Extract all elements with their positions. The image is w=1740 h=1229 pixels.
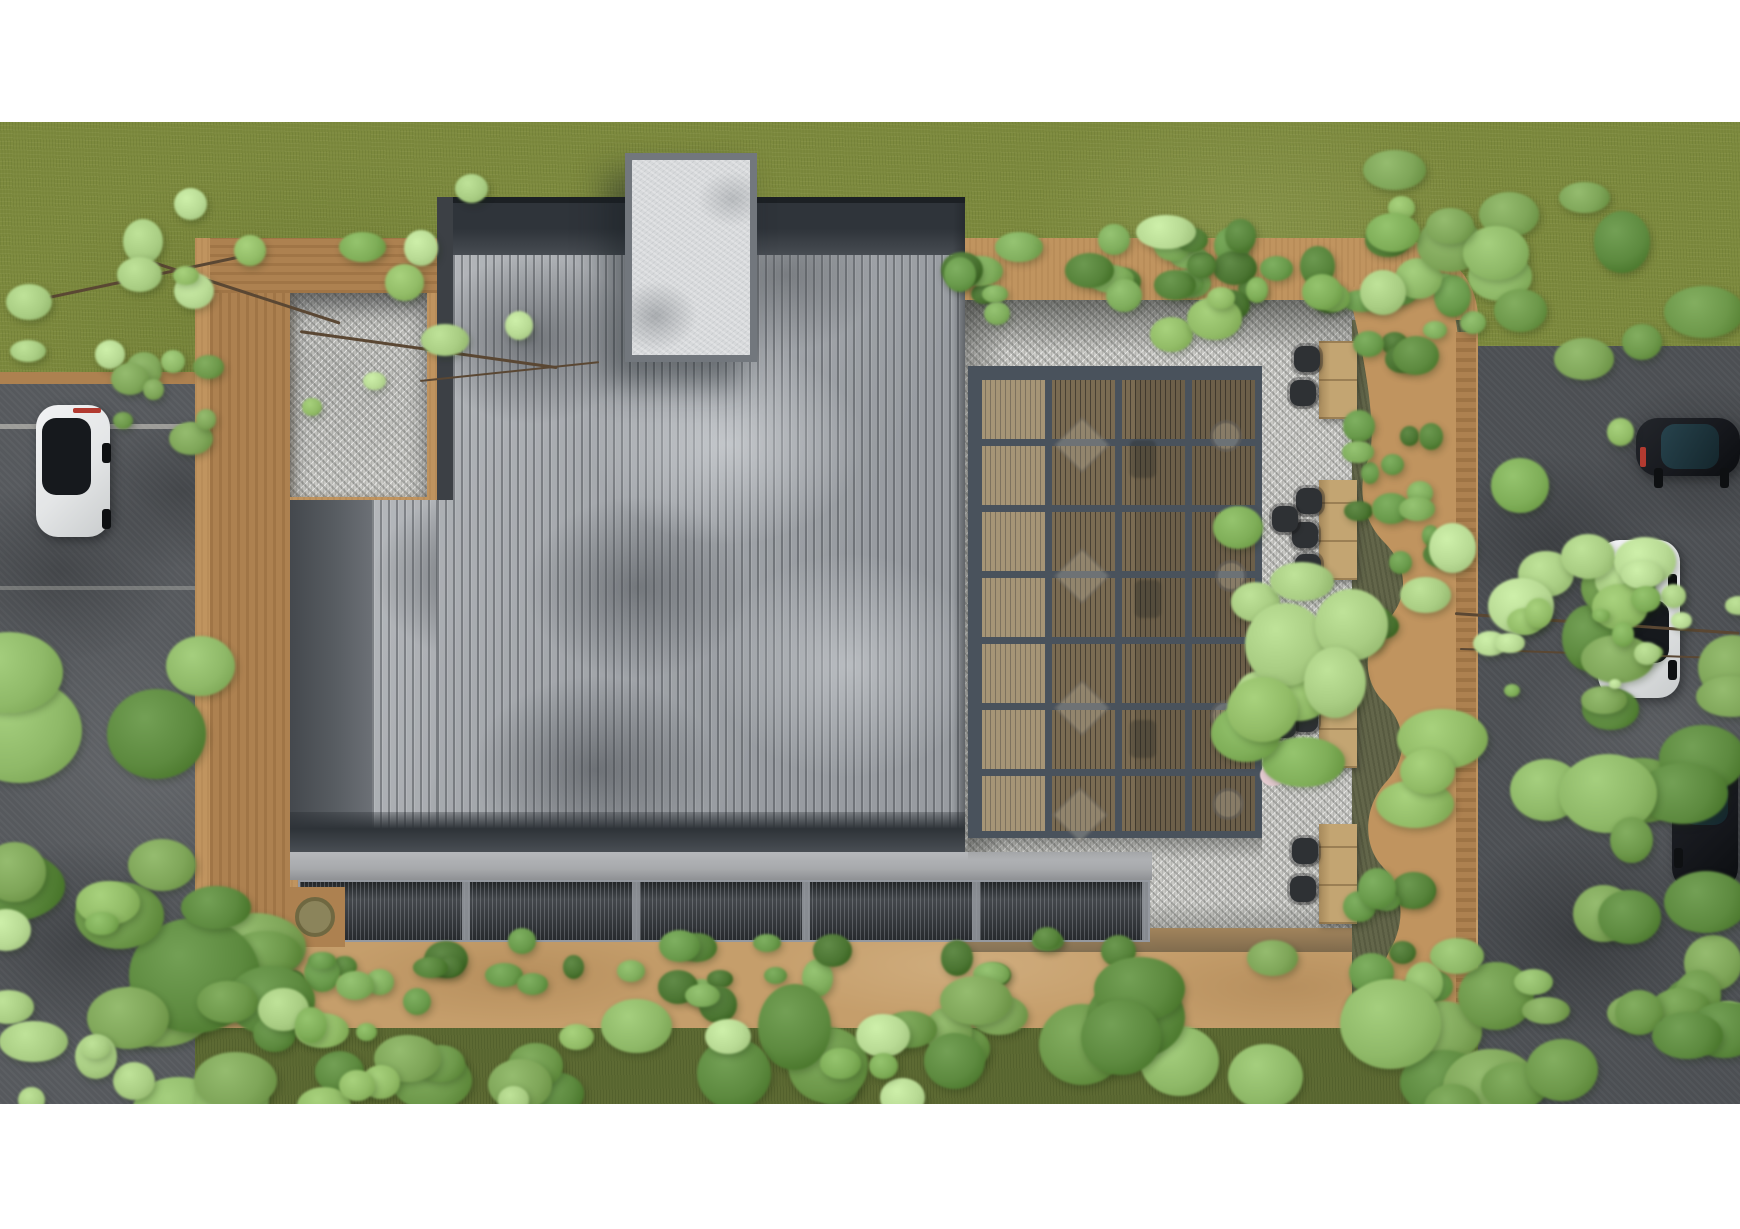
pergola-table-hint <box>1054 417 1111 474</box>
foliage-puff <box>1361 462 1379 484</box>
foliage-puff <box>1594 211 1650 273</box>
foliage-puff <box>339 232 386 262</box>
foliage-puff <box>1136 215 1196 249</box>
foliage-puff <box>1491 458 1549 513</box>
foliage-puff <box>1366 213 1420 252</box>
foliage-puff <box>1631 586 1661 613</box>
pergola-table-hint <box>1054 548 1111 605</box>
car-glass <box>1661 424 1719 469</box>
foliage-puff <box>753 934 781 952</box>
foliage-puff <box>880 1078 925 1104</box>
foliage-puff <box>0 1021 68 1062</box>
patio-chair <box>1290 380 1316 406</box>
foliage-puff <box>1227 677 1298 742</box>
foliage-puff <box>1526 1039 1598 1101</box>
foliage-puff <box>302 398 321 416</box>
foliage-puff <box>505 311 533 340</box>
tree-over-planter <box>1215 505 1485 815</box>
louvered-canopy <box>298 880 1150 942</box>
foliage-puff <box>1360 270 1406 316</box>
foliage-puff <box>1622 324 1663 360</box>
foliage-puff <box>143 379 163 400</box>
tree-sparse-top-left <box>0 180 560 430</box>
shrubs-bottom-left-road <box>0 900 180 1104</box>
foliage-puff <box>295 1007 327 1044</box>
foliage-puff <box>813 934 853 967</box>
foliage-puff <box>869 1053 898 1080</box>
foliage-puff <box>1652 1012 1723 1059</box>
foliage-puff <box>1664 871 1740 933</box>
car-wheel <box>102 509 111 529</box>
patio-chair <box>1292 838 1318 864</box>
foliage-puff <box>404 230 437 266</box>
foliage-puff <box>356 1023 377 1041</box>
rooftop-core-box <box>625 153 757 362</box>
foliage-puff <box>385 264 424 301</box>
foliage-puff <box>941 940 973 975</box>
foliage-puff <box>1621 561 1663 589</box>
foliage-puff <box>128 839 196 891</box>
foliage-puff <box>1400 577 1451 614</box>
foliage-puff <box>1343 410 1374 442</box>
dark-car-top-right <box>1636 418 1740 476</box>
foliage-puff <box>421 324 468 356</box>
foliage-puff <box>1246 277 1268 303</box>
foliage-puff <box>1342 441 1375 462</box>
foliage-puff <box>161 350 185 373</box>
foliage-puff <box>10 340 46 362</box>
foliage-puff <box>1381 454 1404 475</box>
foliage-puff <box>1514 969 1553 995</box>
foliage-puff <box>1554 338 1615 380</box>
parking-line <box>0 586 206 590</box>
foliage-puff <box>1463 226 1530 280</box>
foliage-puff <box>1270 562 1333 601</box>
foliage-puff <box>1612 622 1634 647</box>
car-wheel <box>1654 468 1663 488</box>
foliage-puff <box>0 990 34 1024</box>
foliage-puff <box>498 1086 530 1104</box>
foliage-puff <box>1400 749 1455 794</box>
foliage-puff <box>508 928 536 954</box>
foliage-puff <box>1207 287 1235 309</box>
foliage-puff <box>107 689 206 779</box>
south-eave <box>290 812 965 854</box>
foliage-puff <box>1610 817 1653 863</box>
foliage-puff <box>174 188 207 220</box>
foliage-puff <box>18 1087 45 1104</box>
foliage-puff <box>995 232 1042 262</box>
foliage-puff <box>559 1024 593 1050</box>
foliage-puff <box>1525 598 1552 628</box>
vine-row-right <box>1455 590 1740 710</box>
trees-far-bottom-right <box>1500 980 1740 1104</box>
foliage-puff <box>820 1048 861 1079</box>
building-west-facade <box>290 500 374 848</box>
foliage-puff <box>363 372 386 390</box>
foliage-puff <box>85 912 119 936</box>
foliage-puff <box>944 257 976 292</box>
foliage-puff <box>1559 182 1610 213</box>
foliage-puff <box>308 952 335 970</box>
foliage-puff <box>1081 1000 1161 1075</box>
foliage-puff <box>173 266 199 285</box>
foliage-puff <box>1661 584 1686 608</box>
trees-top-right <box>1385 165 1740 405</box>
foliage-puff <box>1106 279 1142 312</box>
pergola-table-hint <box>1210 420 1242 452</box>
foliage-puff <box>81 1036 110 1059</box>
pergola-chair-hint <box>1130 440 1156 478</box>
foliage-puff <box>659 930 700 962</box>
foliage-puff <box>166 636 234 696</box>
foliage-puff <box>982 285 1008 303</box>
foliage-puff <box>1098 224 1131 255</box>
patio-chair <box>1290 876 1316 902</box>
foliage-puff <box>1340 979 1441 1069</box>
foliage-puff <box>6 284 52 321</box>
corner-planter-pot <box>295 897 335 937</box>
foliage-puff <box>1607 418 1635 446</box>
foliage-puff <box>705 1019 751 1055</box>
foliage-puff <box>1419 423 1443 450</box>
foliage-puff <box>339 1070 375 1101</box>
foliage-puff <box>0 909 31 951</box>
foliage-puff <box>193 355 224 379</box>
foliage-puff <box>1495 633 1524 654</box>
foliage-puff <box>1504 684 1520 697</box>
foliage-puff <box>1671 612 1692 629</box>
foliage-puff <box>1522 997 1571 1024</box>
car-wheel <box>1720 468 1729 488</box>
foliage-puff <box>1393 336 1439 375</box>
tree-top-center-right <box>1150 180 1410 340</box>
foliage-puff <box>856 1014 910 1058</box>
pergola-table-hint <box>1052 787 1109 844</box>
pergola-table-hint <box>1054 680 1111 737</box>
patio-chair <box>1294 346 1320 372</box>
foliage-puff <box>455 174 488 203</box>
foliage-puff <box>1598 890 1662 945</box>
trees-bottom-center-light <box>260 1000 960 1104</box>
shrub-left-roadside <box>118 342 228 467</box>
foliage-puff <box>1247 940 1298 976</box>
foliage-puff <box>1213 506 1263 549</box>
foliage-puff <box>181 886 251 929</box>
trees-bottom-right <box>1040 950 1580 1104</box>
foliage-puff <box>1494 289 1547 332</box>
pergola-chair-hint <box>1135 580 1161 618</box>
foliage-puff <box>1400 426 1419 445</box>
foliage-puff <box>117 257 162 292</box>
foliage-puff <box>1304 647 1367 718</box>
foliage-puff <box>1065 253 1114 288</box>
scene-area <box>0 122 1740 1104</box>
foliage-puff <box>1592 609 1610 623</box>
foliage-puff <box>113 1062 155 1100</box>
foliage-puff <box>1358 868 1396 909</box>
foliage-puff <box>1725 596 1740 615</box>
foliage-puff <box>1609 679 1622 689</box>
foliage-puff <box>1634 642 1660 665</box>
foliage-puff <box>196 409 216 429</box>
aerial-site-render <box>0 0 1740 1229</box>
foliage-puff <box>1228 1044 1302 1104</box>
pergola-chair-hint <box>1130 720 1156 758</box>
foliage-puff <box>234 235 266 266</box>
pergola-shadow <box>968 838 1262 860</box>
car-wheel <box>102 443 111 463</box>
foliage-puff <box>113 412 133 429</box>
foliage-puff <box>1664 286 1740 338</box>
